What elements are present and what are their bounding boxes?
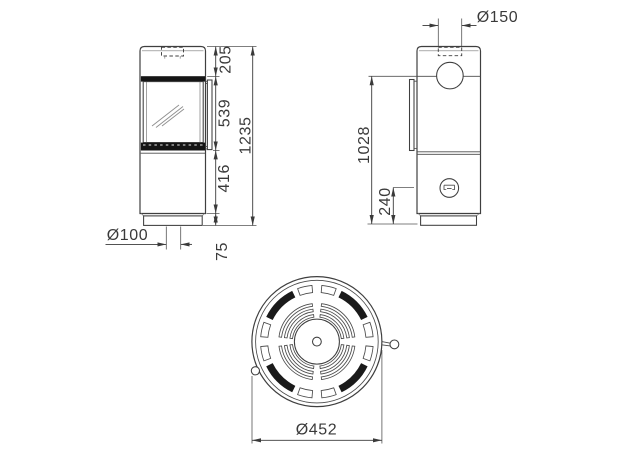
drawing-svg: 205 539 416 75 1235 Ø100 Ø150 1028 240 [0,0,624,460]
front-door-handle [207,80,212,150]
stove-dimension-drawing: 205 539 416 75 1235 Ø100 Ø150 1028 240 [0,0,624,460]
dim-label-side-flue-height: 1028 [356,126,373,164]
dim-label-front-door-height: 539 [217,99,234,128]
side-view [410,47,481,226]
top-right-knob [390,340,399,349]
top-left-knob [251,367,259,375]
dim-label-front-plinth: 75 [214,242,231,261]
front-view [140,47,212,226]
top-center-hole [313,337,322,346]
dim-label-side-flue-diameter: Ø150 [477,9,519,26]
side-plinth [421,216,477,225]
side-door-edge-strip [410,80,415,151]
front-door-bottom-band [141,143,205,151]
front-door-glass [143,82,203,143]
front-door-top-band [141,76,205,81]
dim-label-front-top-section: 205 [218,45,235,74]
dim-label-front-floor-inlet: Ø100 [107,227,149,244]
dim-label-front-lower-section: 416 [216,164,233,193]
dim-label-top-diameter: Ø452 [296,422,338,439]
dim-label-side-rear-inlet-height: 240 [377,187,394,216]
front-plinth [144,216,203,226]
dim-label-front-total-height: 1235 [237,116,254,154]
side-flue-outlet-circle [437,62,464,89]
